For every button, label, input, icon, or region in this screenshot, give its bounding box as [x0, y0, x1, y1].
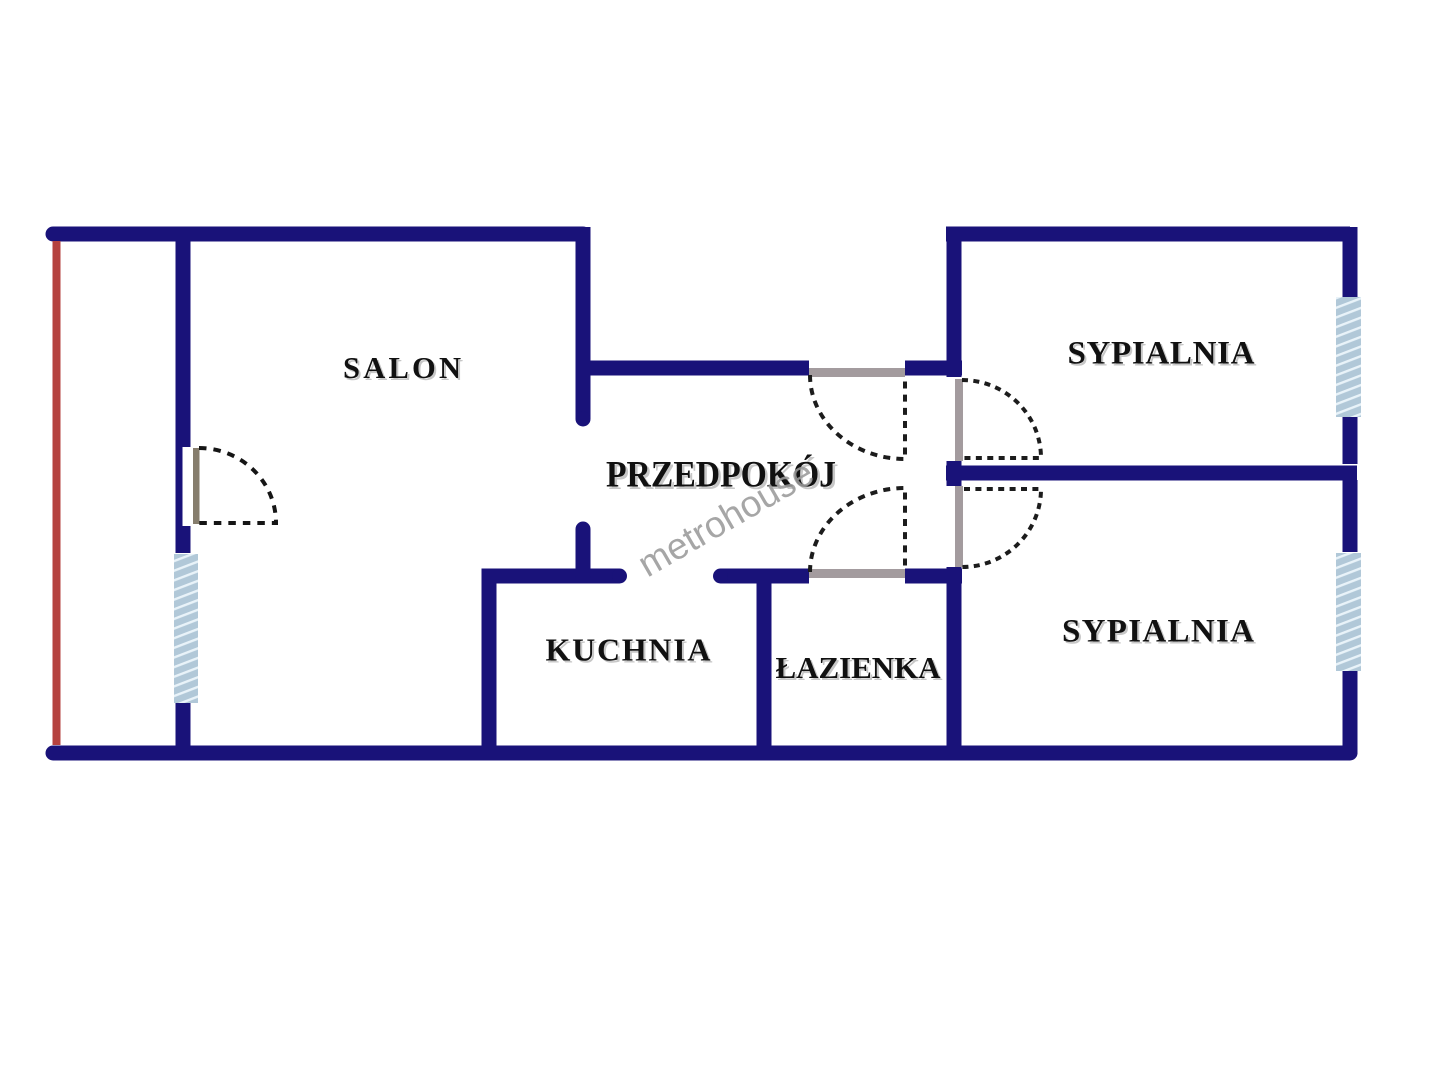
svg-text:SYPIALNIA: SYPIALNIA [1068, 336, 1255, 372]
svg-text:ŁAZIENKA: ŁAZIENKA [776, 650, 942, 685]
svg-text:SYPIALNIA: SYPIALNIA [1062, 614, 1254, 650]
